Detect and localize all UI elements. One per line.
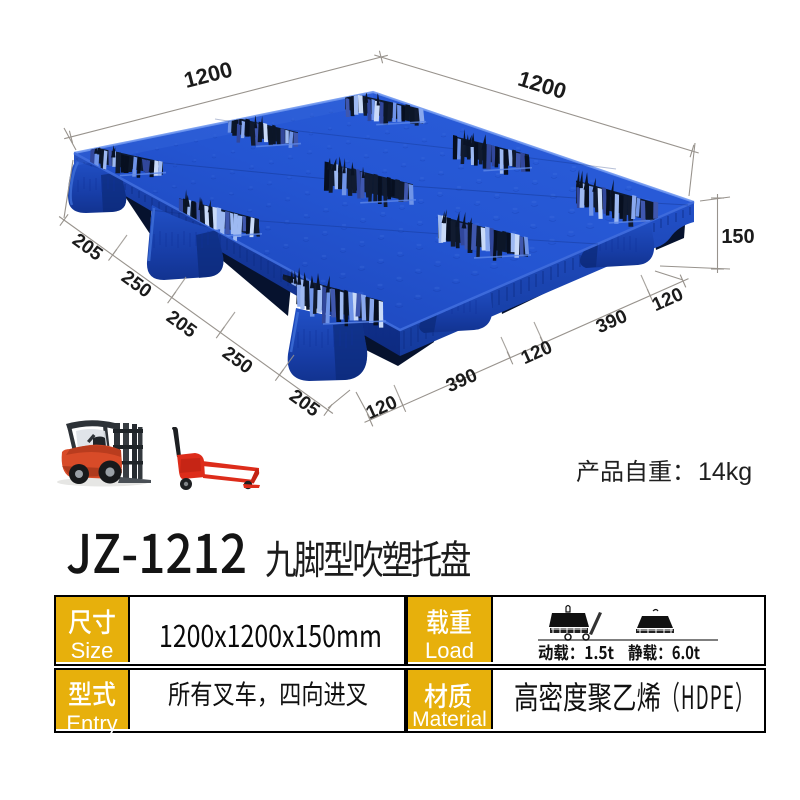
svg-text:14kg: 14kg bbox=[698, 458, 752, 486]
svg-text:1200: 1200 bbox=[515, 66, 569, 104]
svg-text:150: 150 bbox=[721, 226, 754, 248]
svg-text:205: 205 bbox=[285, 386, 323, 422]
svg-text:205: 205 bbox=[68, 230, 106, 266]
svg-text:120: 120 bbox=[363, 392, 401, 424]
svg-text:390: 390 bbox=[443, 365, 481, 397]
svg-text:390: 390 bbox=[593, 306, 631, 338]
svg-text:250: 250 bbox=[218, 343, 256, 379]
svg-text:1200: 1200 bbox=[181, 57, 235, 93]
svg-text:120: 120 bbox=[649, 284, 687, 316]
svg-text:120: 120 bbox=[518, 337, 556, 369]
svg-text:205: 205 bbox=[162, 307, 200, 343]
